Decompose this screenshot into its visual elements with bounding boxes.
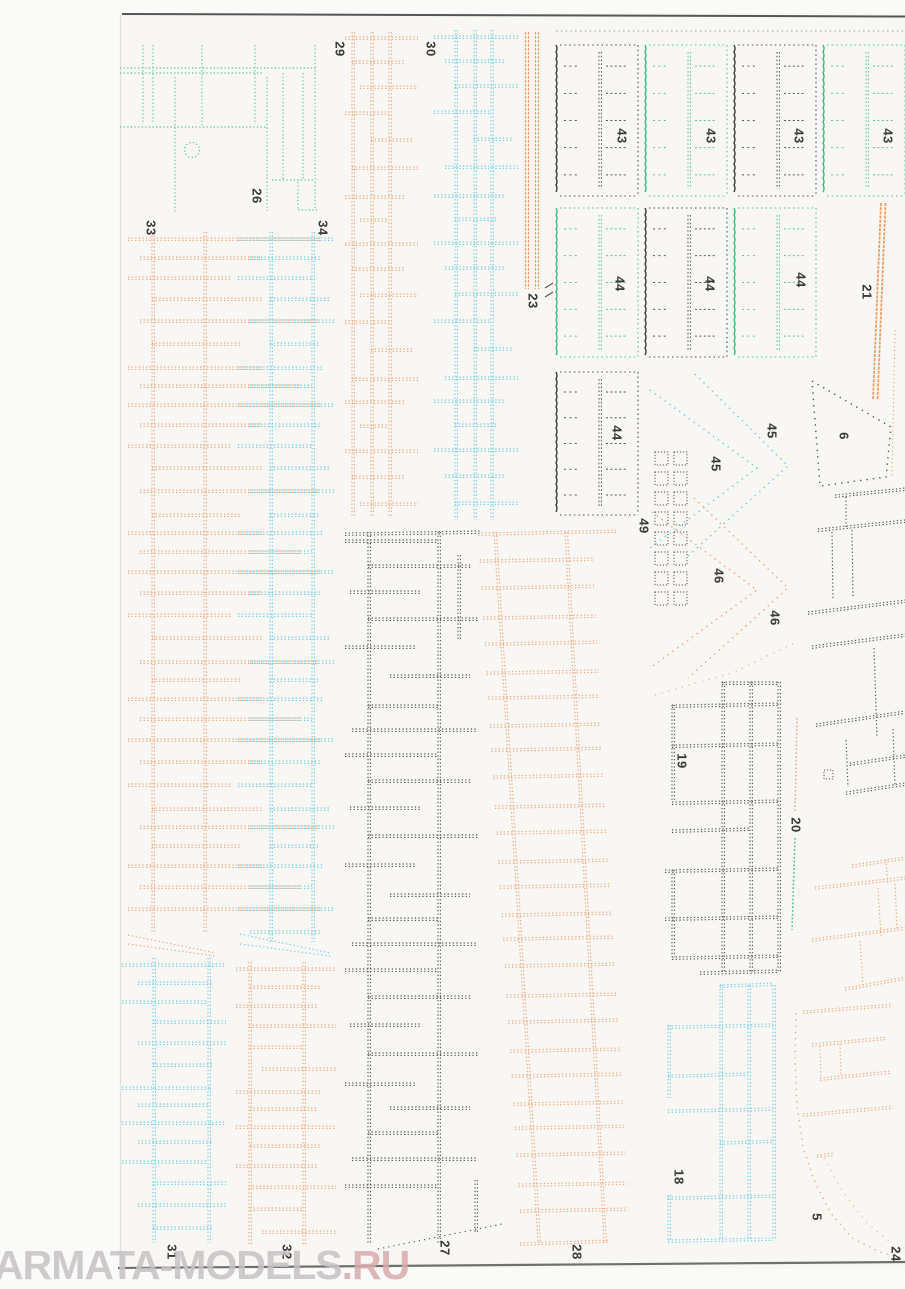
part-label-28: 28 [570, 1244, 585, 1259]
part-label-5: 5 [810, 1213, 825, 1221]
part-label-46-2: 46 [768, 610, 783, 625]
sheet-drawing [0, 0, 905, 1280]
part-label-19: 19 [675, 753, 690, 768]
part-label-44-4: 44 [610, 425, 625, 440]
part-label-29: 29 [333, 41, 348, 56]
part-label-33: 33 [144, 220, 159, 235]
part-label-46-1: 46 [712, 568, 727, 583]
part-label-43-2: 43 [704, 128, 719, 143]
part-label-23: 23 [526, 293, 541, 308]
part-label-20: 20 [789, 817, 804, 832]
part-label-44-3: 44 [794, 272, 809, 287]
part-label-30: 30 [424, 41, 439, 56]
part-label-24: 24 [889, 1246, 904, 1261]
part-label-45-1: 45 [709, 456, 724, 471]
watermark-suffix: .RU [342, 1242, 410, 1288]
part-label-27: 27 [438, 1240, 453, 1255]
part-label-44-1: 44 [613, 276, 628, 291]
part-label-18: 18 [672, 1169, 687, 1184]
part-label-21: 21 [860, 284, 875, 299]
model-sheet-scan: 26 29 30 33 34 23 43 43 43 43 44 44 44 4… [0, 0, 905, 1280]
part-label-49: 49 [637, 518, 652, 533]
part-label-45-2: 45 [765, 423, 780, 438]
part-label-43-3: 43 [792, 128, 807, 143]
part-label-34: 34 [316, 220, 331, 235]
part-label-26: 26 [250, 188, 265, 203]
part-label-43-4: 43 [881, 128, 896, 143]
part-label-6: 6 [837, 432, 852, 440]
watermark-main: ARMATA-MODELS [0, 1242, 342, 1288]
part-label-44-2: 44 [703, 276, 718, 291]
part-label-43-1: 43 [615, 128, 630, 143]
watermark: ARMATA-MODELS.RU [0, 1242, 409, 1289]
